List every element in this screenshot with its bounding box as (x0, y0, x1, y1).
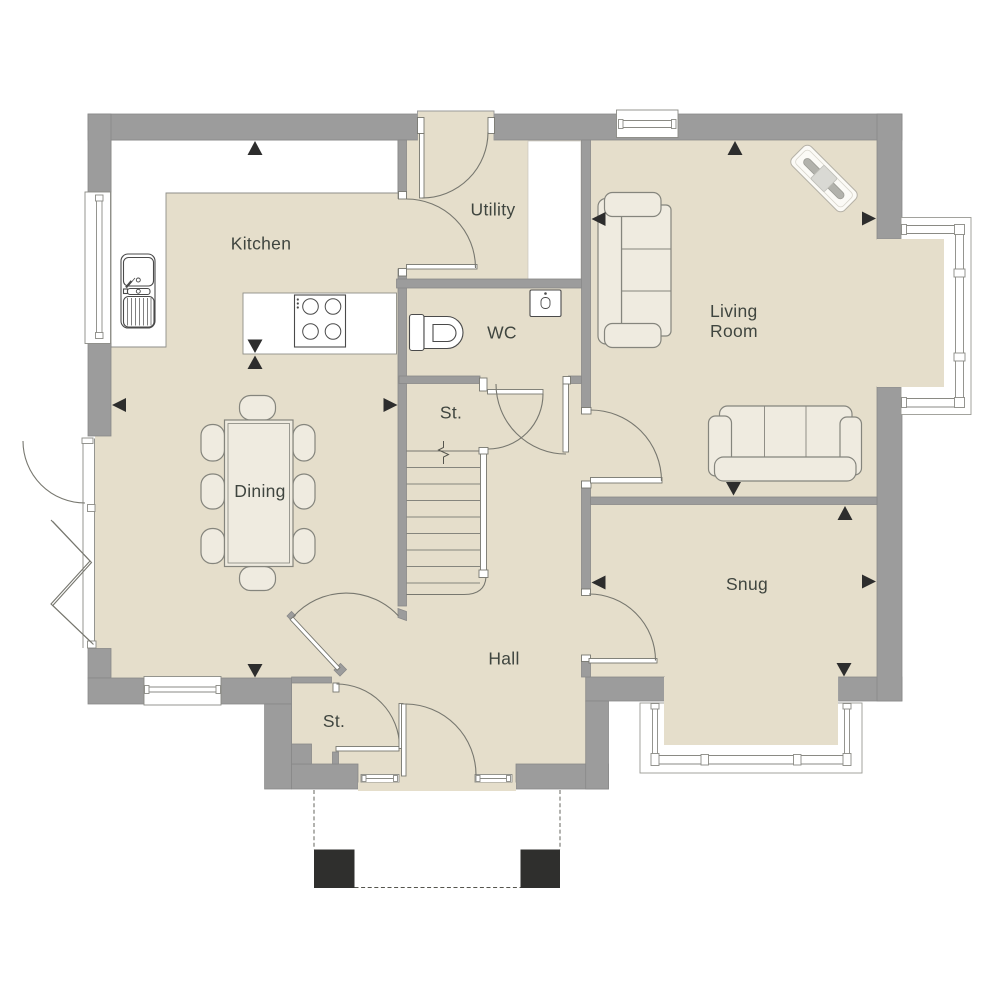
svg-text:Dining: Dining (234, 481, 285, 501)
svg-text:Utility: Utility (471, 200, 516, 220)
svg-text:Kitchen: Kitchen (231, 234, 291, 254)
svg-text:St.: St. (323, 711, 345, 731)
svg-text:St.: St. (440, 403, 462, 423)
svg-text:WC: WC (487, 323, 517, 343)
svg-text:Snug: Snug (726, 574, 768, 594)
svg-text:Room: Room (710, 321, 758, 341)
svg-text:Living: Living (710, 301, 758, 321)
svg-text:Hall: Hall (488, 649, 519, 669)
